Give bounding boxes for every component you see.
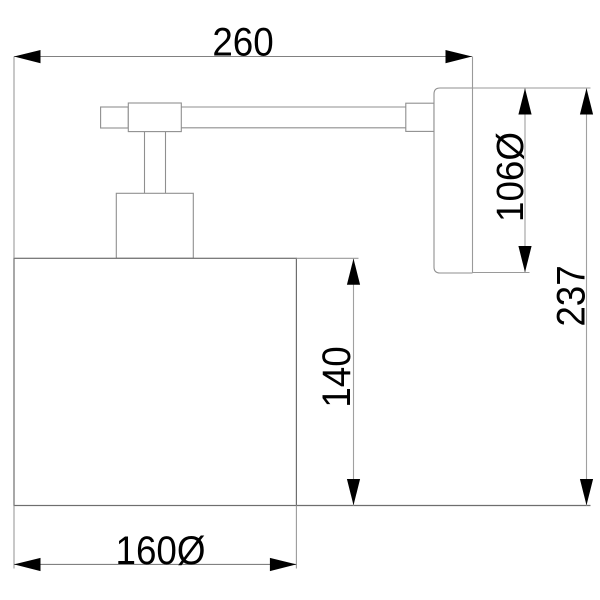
svg-text:140: 140 (315, 346, 360, 407)
svg-text:237: 237 (549, 265, 594, 326)
svg-text:160Ø: 160Ø (115, 529, 205, 574)
svg-text:260: 260 (212, 20, 273, 65)
svg-text:106Ø: 106Ø (488, 132, 531, 222)
